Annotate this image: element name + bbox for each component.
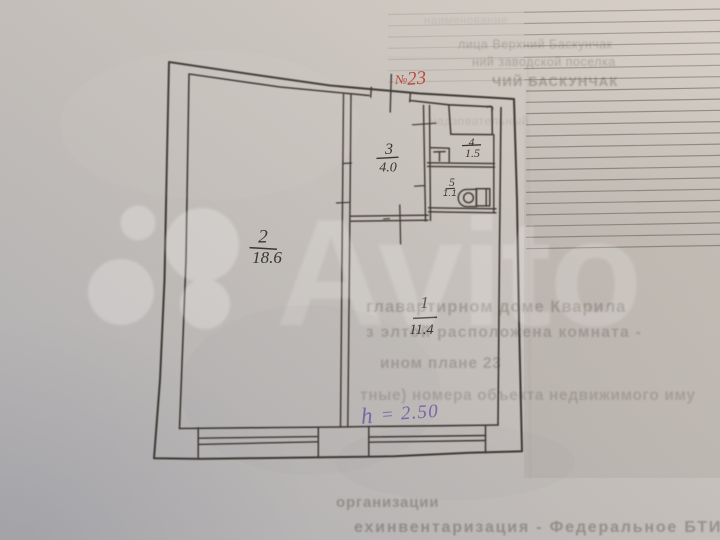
svg-text:3: 3 xyxy=(384,141,393,158)
svg-text:1.5: 1.5 xyxy=(465,146,480,160)
svg-text:5: 5 xyxy=(449,177,455,189)
svg-text:№: № xyxy=(394,71,408,87)
svg-text:ний заводской поселка: ний заводской поселка xyxy=(472,55,616,69)
svg-text:ЧИЙ БАСКУНЧАК: ЧИЙ БАСКУНЧАК xyxy=(492,74,619,89)
svg-text:лица Верхний Баскунчак: лица Верхний Баскунчак xyxy=(458,38,613,52)
svg-text:2: 2 xyxy=(258,227,268,248)
svg-text:ехинвентаризация - Федеральн: ехинвентаризация - Федеральное БТИ” Я xyxy=(354,519,720,536)
svg-text:23: 23 xyxy=(406,68,426,90)
svg-text:наименование: наименование xyxy=(424,15,508,27)
svg-text:4.0: 4.0 xyxy=(379,161,397,176)
svg-text:введения передачи единицы х: введения передачи единицы хран xyxy=(390,536,683,540)
